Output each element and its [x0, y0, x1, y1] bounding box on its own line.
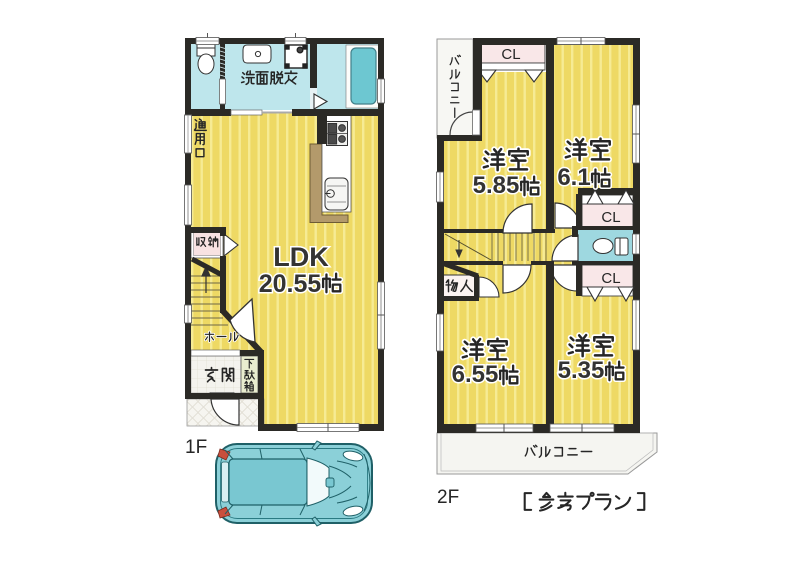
svg-text:CL: CL [601, 270, 620, 287]
svg-text:LDK: LDK [273, 242, 329, 272]
svg-text:6.55: 6.55 [452, 361, 499, 388]
svg-text:CL: CL [601, 209, 620, 226]
svg-text:5.85: 5.85 [473, 172, 520, 199]
svg-text:1F: 1F [185, 437, 207, 458]
svg-text:6.1: 6.1 [557, 164, 590, 191]
svg-text:5.35: 5.35 [558, 357, 605, 384]
svg-text:20.55: 20.55 [259, 270, 322, 298]
svg-text:2F: 2F [437, 487, 459, 508]
svg-text:CL: CL [501, 46, 520, 63]
